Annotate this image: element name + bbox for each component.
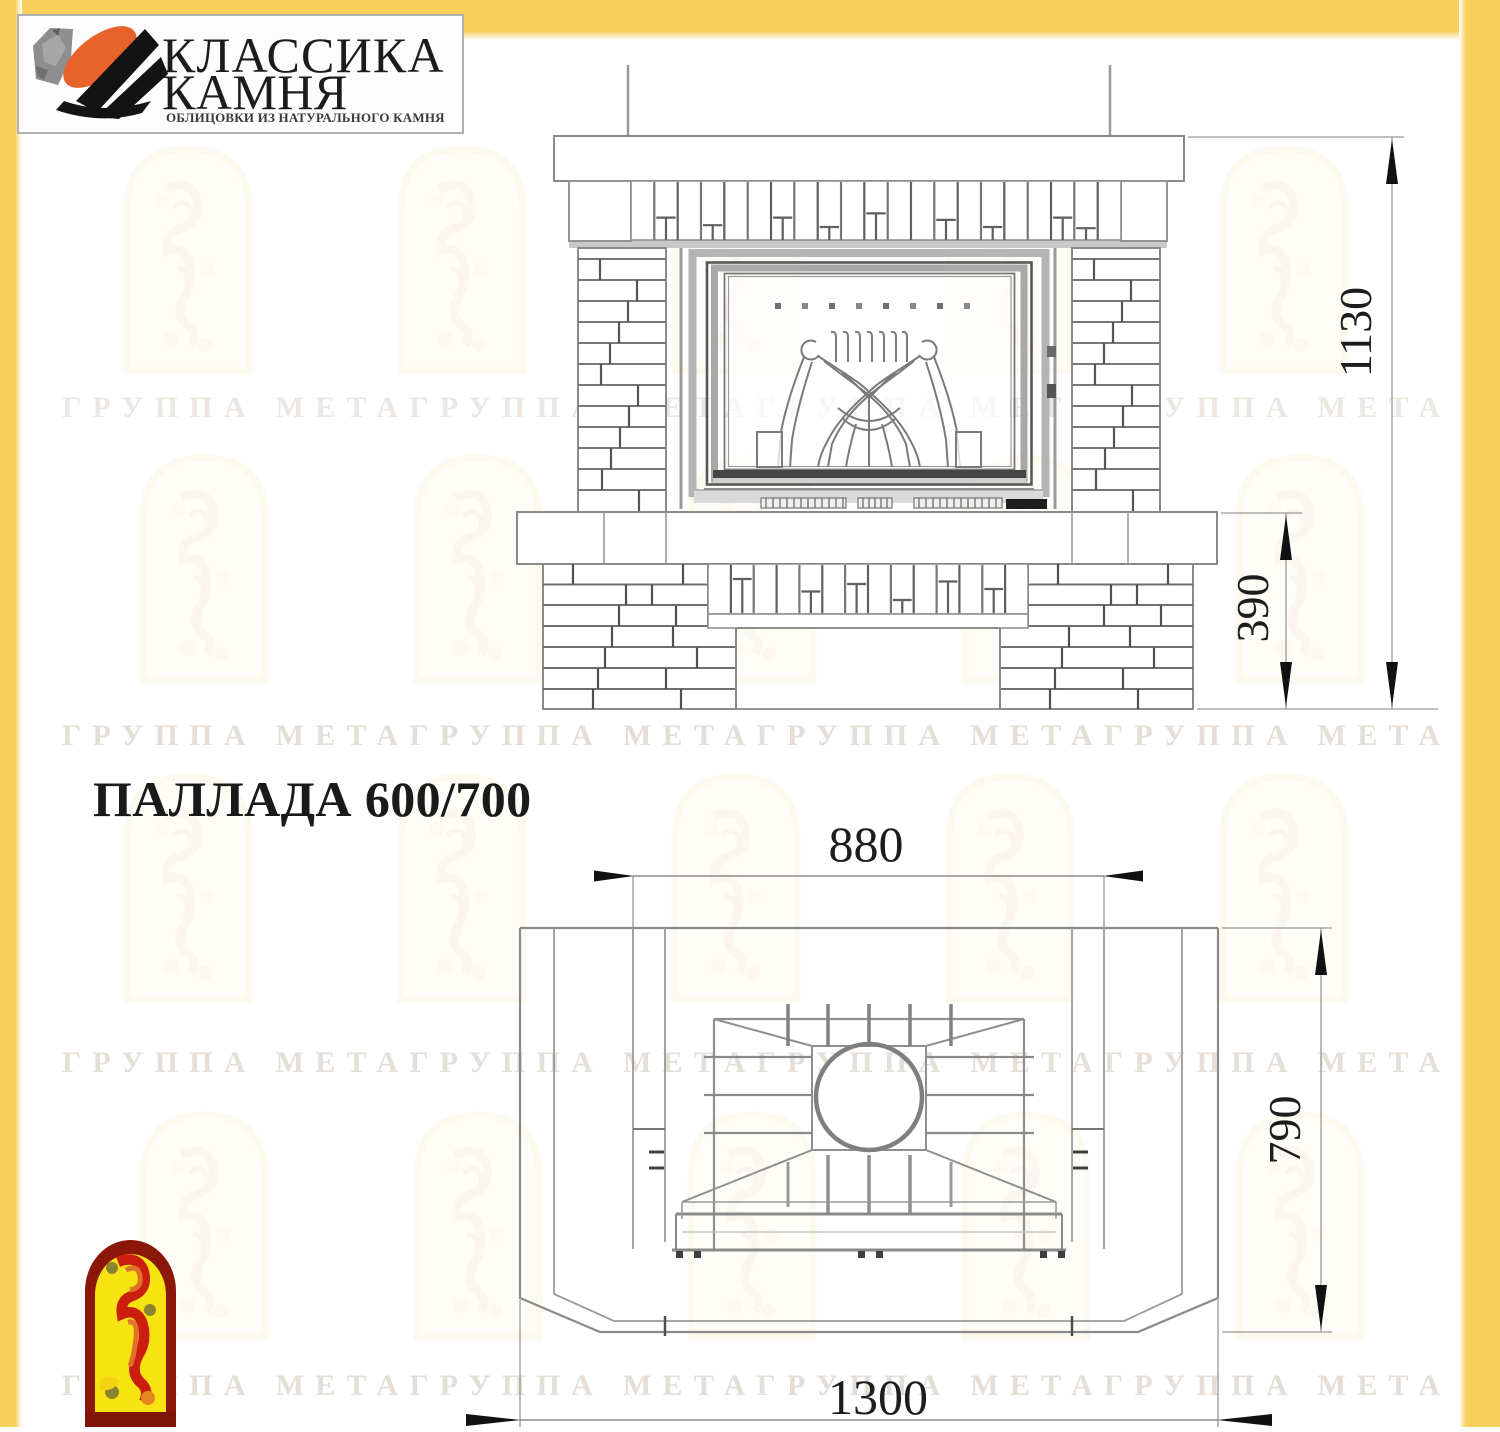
svg-text:ГРУППА МЕТАГРУППА МЕТАГРУППА М: ГРУППА МЕТАГРУППА МЕТАГРУППА МЕТАГРУППА … xyxy=(62,719,1451,752)
svg-text:1130: 1130 xyxy=(1330,287,1381,377)
svg-text:1300: 1300 xyxy=(828,1369,928,1425)
svg-text:790: 790 xyxy=(1259,1096,1310,1165)
svg-text:390: 390 xyxy=(1227,574,1278,643)
svg-text:ОБЛИЦОВКИ ИЗ НАТУРАЛЬНОГО КАМН: ОБЛИЦОВКИ ИЗ НАТУРАЛЬНОГО КАМНЯ xyxy=(166,110,445,125)
svg-text:ГРУППА МЕТАГРУППА МЕТАГРУППА М: ГРУППА МЕТАГРУППА МЕТАГРУППА МЕТАГРУППА … xyxy=(62,1046,1451,1079)
svg-text:ПАЛЛАДА 600/700: ПАЛЛАДА 600/700 xyxy=(93,771,532,827)
svg-text:880: 880 xyxy=(829,816,904,872)
svg-text:ГРУППА МЕТАГРУППА МЕТАГРУППА М: ГРУППА МЕТАГРУППА МЕТАГРУППА МЕТАГРУППА … xyxy=(62,1369,1451,1402)
